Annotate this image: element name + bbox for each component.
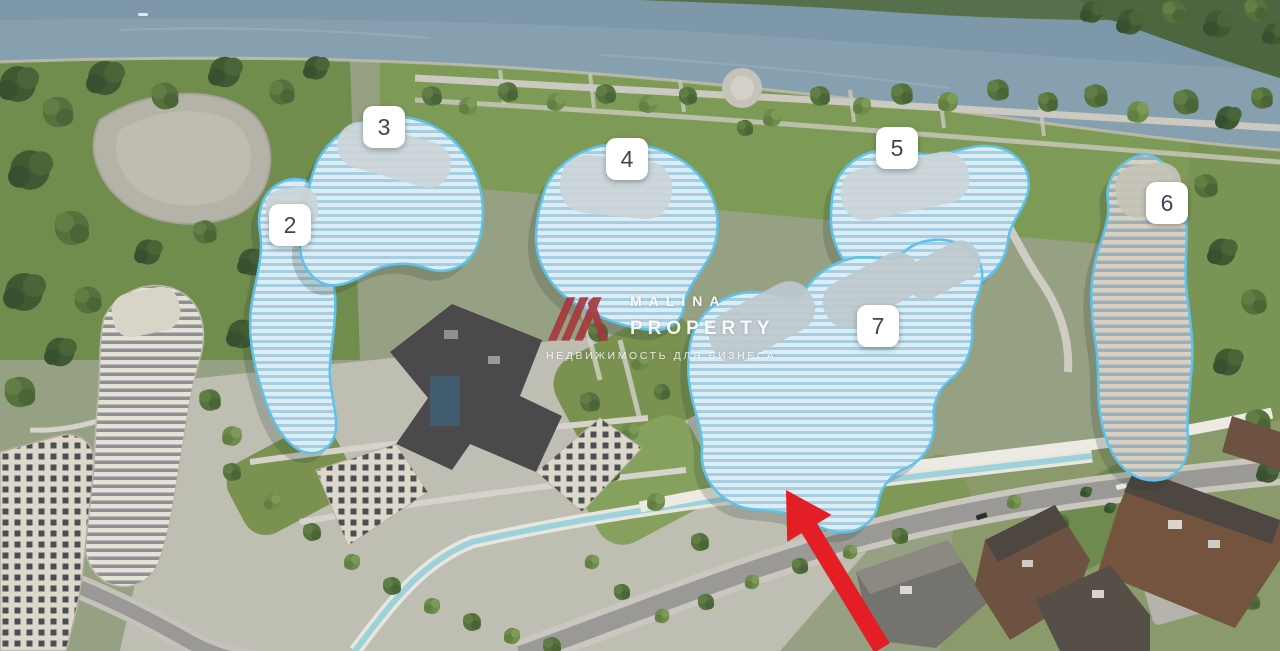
building-label-3: 3 xyxy=(363,106,405,148)
building-label-4: 4 xyxy=(606,138,648,180)
boat xyxy=(138,13,148,16)
watermark-brand-line2: PROPERTY xyxy=(630,318,776,344)
building-number: 4 xyxy=(621,146,634,173)
building-number: 7 xyxy=(872,313,885,340)
building-label-2: 2 xyxy=(269,204,311,246)
building-number: 6 xyxy=(1161,190,1174,217)
building-label-7: 7 xyxy=(857,305,899,347)
malina-logo-icon xyxy=(546,291,612,343)
building-number: 3 xyxy=(378,114,391,141)
building-label-5: 5 xyxy=(876,127,918,169)
watermark-brand-line1: MALINA xyxy=(630,293,776,313)
building-number: 5 xyxy=(891,135,904,162)
watermark: MALINA PROPERTY НЕДВИЖИМОСТЬ ДЛЯ БИЗНЕСА xyxy=(546,291,776,362)
watermark-tagline: НЕДВИЖИМОСТЬ ДЛЯ БИЗНЕСА xyxy=(546,350,776,362)
aerial-photo: 2 3 4 5 6 7 MALINA PROPERTY НЕДВИЖИМОСТЬ… xyxy=(0,0,1280,651)
building-number: 2 xyxy=(284,212,297,239)
building-label-6: 6 xyxy=(1146,182,1188,224)
